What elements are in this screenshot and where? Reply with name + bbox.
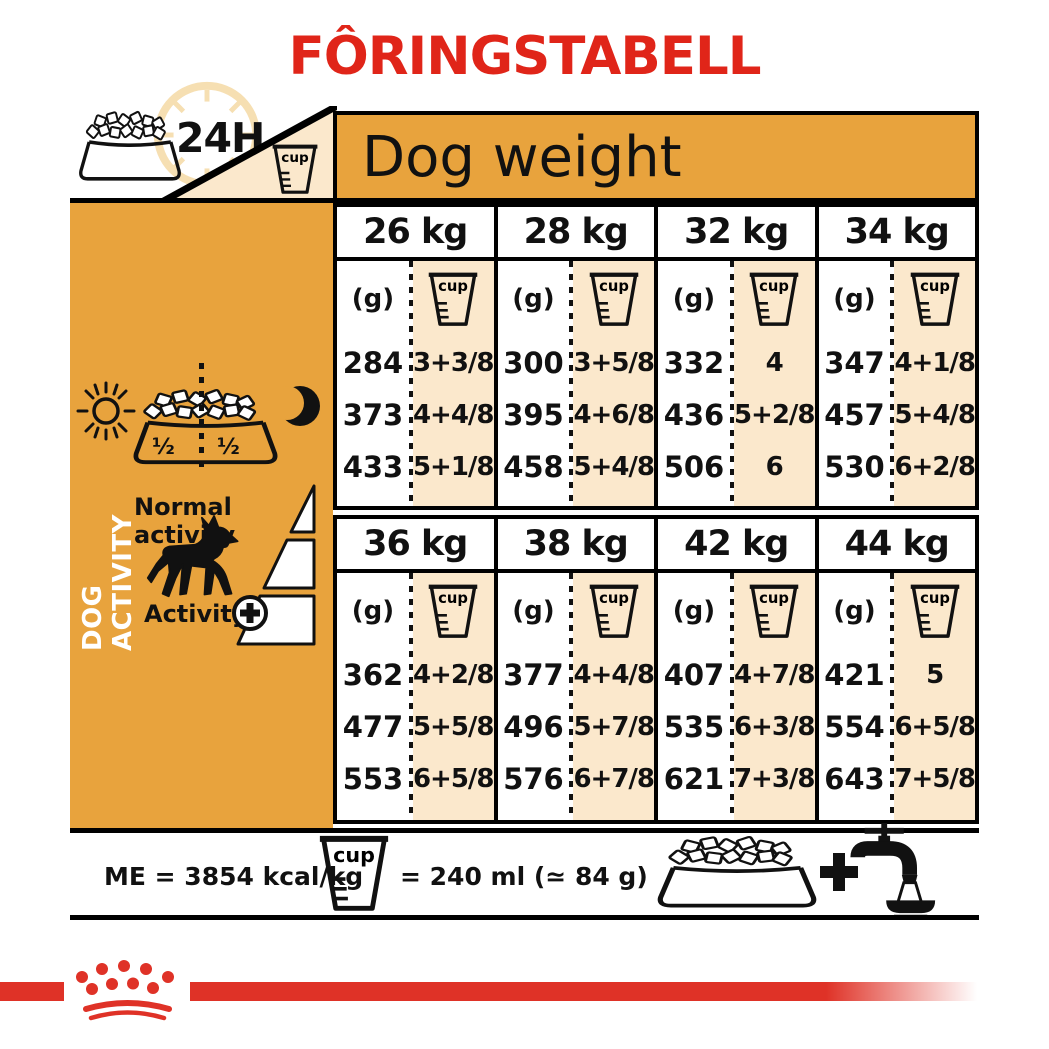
half-portion-right: ½ xyxy=(217,435,240,460)
svg-text:cup: cup xyxy=(599,590,629,607)
feeding-table-upper: 26 kg(g)284373433cup3+3/84+4/85+1/828 kg… xyxy=(333,203,979,510)
cup-icon: cup xyxy=(316,834,392,912)
cup-subheader: cup xyxy=(748,261,800,337)
grams-value: 458 xyxy=(503,441,564,493)
grams-value: 395 xyxy=(503,389,564,441)
weight-header: 28 kg xyxy=(498,207,655,261)
cups-value: 6+3/8 xyxy=(734,701,815,753)
grams-value: 457 xyxy=(824,389,885,441)
cup-icon: cup xyxy=(427,582,479,640)
cups-value: 3+5/8 xyxy=(573,337,654,389)
cups-value: 7+3/8 xyxy=(734,753,815,805)
cups-value: 5 xyxy=(926,649,943,701)
weight-body: (g)284373433cup3+3/84+4/85+1/8 xyxy=(337,261,494,506)
dog-weight-header: Dog weight xyxy=(333,111,979,203)
grams-subcolumn: (g)421554643 xyxy=(819,573,891,820)
cup-subheader: cup xyxy=(427,573,479,649)
cups-value: 4+4/8 xyxy=(413,389,494,441)
cups-value: 6+7/8 xyxy=(573,753,654,805)
cup-icon: cup xyxy=(748,582,800,640)
cup-icon: cup xyxy=(588,582,640,640)
weight-column: 36 kg(g)362477553cup4+2/85+5/86+5/8 xyxy=(337,519,498,820)
grams-unit: (g) xyxy=(512,261,554,337)
grams-value: 553 xyxy=(343,753,404,805)
weight-header: 36 kg xyxy=(337,519,494,573)
grams-value: 530 xyxy=(824,441,885,493)
weight-column: 38 kg(g)377496576cup4+4/85+7/86+7/8 xyxy=(498,519,659,820)
cup-icon: cup xyxy=(588,270,640,328)
grams-value: 477 xyxy=(343,701,404,753)
brand-stripe-left xyxy=(0,982,64,1001)
feeding-table-lower: 36 kg(g)362477553cup4+2/85+5/86+5/838 kg… xyxy=(333,515,979,824)
royal-canin-crown-logo xyxy=(70,958,185,1024)
cups-value: 5+2/8 xyxy=(734,389,815,441)
dog-activity-sidebar: ½ ½ DOG ACTIVITY Normal activity Activit… xyxy=(70,203,333,828)
cups-subcolumn: cup56+5/87+5/8 xyxy=(894,573,975,820)
divider-line xyxy=(70,828,979,833)
cup-subheader: cup xyxy=(588,573,640,649)
weight-header: 42 kg xyxy=(658,519,815,573)
grams-subcolumn: (g)332436506 xyxy=(658,261,730,506)
cup-subheader: cup xyxy=(909,573,961,649)
weight-column: 34 kg(g)347457530cup4+1/85+4/86+2/8 xyxy=(819,207,976,506)
cups-value: 7+5/8 xyxy=(894,753,975,805)
cups-subcolumn: cup4+4/85+7/86+7/8 xyxy=(573,573,654,820)
cups-value: 6+2/8 xyxy=(894,441,975,493)
cups-value: 4+2/8 xyxy=(413,649,494,701)
weight-column: 26 kg(g)284373433cup3+3/84+4/85+1/8 xyxy=(337,207,498,506)
cups-value: 6+5/8 xyxy=(413,753,494,805)
cup-equivalence-label: = 240 ml (≃ 84 g) xyxy=(400,862,648,891)
divider-line xyxy=(70,915,979,920)
cups-value: 4 xyxy=(766,337,783,389)
svg-text:cup: cup xyxy=(920,278,950,295)
grams-value: 421 xyxy=(824,649,885,701)
grams-value: 373 xyxy=(343,389,404,441)
brand-stripe-right xyxy=(190,982,985,1001)
cup-icon: cup xyxy=(427,270,479,328)
weight-header: 26 kg xyxy=(337,207,494,261)
weight-header: 44 kg xyxy=(819,519,976,573)
cups-value: 4+1/8 xyxy=(894,337,975,389)
grams-value: 377 xyxy=(503,649,564,701)
grams-unit: (g) xyxy=(833,261,875,337)
grams-value: 300 xyxy=(503,337,564,389)
cup-subheader: cup xyxy=(588,261,640,337)
grams-value: 576 xyxy=(503,753,564,805)
cups-value: 4+6/8 xyxy=(573,389,654,441)
cups-subcolumn: cup3+5/84+6/85+4/8 xyxy=(573,261,654,506)
half-portion-left: ½ xyxy=(152,435,175,460)
cups-subcolumn: cup4+1/85+4/86+2/8 xyxy=(894,261,975,506)
plus-circle-icon xyxy=(230,593,270,633)
weight-column: 44 kg(g)421554643cup56+5/87+5/8 xyxy=(819,519,976,820)
cups-value: 4+7/8 xyxy=(734,649,815,701)
svg-text:cup: cup xyxy=(438,590,468,607)
grams-unit: (g) xyxy=(352,261,394,337)
grams-value: 506 xyxy=(664,441,725,493)
svg-text:cup: cup xyxy=(759,590,789,607)
sun-icon xyxy=(76,381,136,441)
cups-value: 5+7/8 xyxy=(573,701,654,753)
cup-icon: cup xyxy=(909,582,961,640)
grams-value: 347 xyxy=(824,337,885,389)
cup-icon: cup xyxy=(271,142,319,196)
feeding-table-page: FÔRINGSTABELL 24H cup Dog weight xyxy=(0,0,1049,1049)
cups-value: 5+4/8 xyxy=(573,441,654,493)
weight-body: (g)407535621cup4+7/86+3/87+3/8 xyxy=(658,573,815,820)
grams-subcolumn: (g)377496576 xyxy=(498,573,570,820)
grams-value: 554 xyxy=(824,701,885,753)
cup-icon: cup xyxy=(748,270,800,328)
grams-value: 621 xyxy=(664,753,725,805)
cups-value: 5+4/8 xyxy=(894,389,975,441)
grams-unit: (g) xyxy=(673,573,715,649)
cups-value: 6+5/8 xyxy=(894,701,975,753)
weight-body: (g)421554643cup56+5/87+5/8 xyxy=(819,573,976,820)
cup-icon: cup xyxy=(909,270,961,328)
cup-subheader: cup xyxy=(748,573,800,649)
bowl-split-dotted-line xyxy=(199,363,204,469)
grams-subcolumn: (g)407535621 xyxy=(658,573,730,820)
weight-body: (g)362477553cup4+2/85+5/86+5/8 xyxy=(337,573,494,820)
cup-subheader: cup xyxy=(427,261,479,337)
weight-column: 32 kg(g)332436506cup45+2/86 xyxy=(658,207,819,506)
dog-silhouette-icon xyxy=(146,511,242,603)
cups-subcolumn: cup4+2/85+5/86+5/8 xyxy=(413,573,494,820)
cups-value: 5+5/8 xyxy=(413,701,494,753)
cup-subheader: cup xyxy=(909,261,961,337)
grams-value: 436 xyxy=(664,389,725,441)
food-bowl-icon xyxy=(656,835,818,913)
cups-subcolumn: cup4+7/86+3/87+3/8 xyxy=(734,573,815,820)
weight-body: (g)377496576cup4+4/85+7/86+7/8 xyxy=(498,573,655,820)
grams-value: 433 xyxy=(343,441,404,493)
grams-unit: (g) xyxy=(833,573,875,649)
svg-text:cup: cup xyxy=(333,843,375,867)
grams-value: 362 xyxy=(343,649,404,701)
grams-value: 535 xyxy=(664,701,725,753)
dog-activity-label: DOG ACTIVITY xyxy=(78,475,138,651)
weight-header: 38 kg xyxy=(498,519,655,573)
grams-value: 496 xyxy=(503,701,564,753)
svg-text:cup: cup xyxy=(599,278,629,295)
cups-value: 5+1/8 xyxy=(413,441,494,493)
grams-value: 643 xyxy=(824,753,885,805)
weight-column: 42 kg(g)407535621cup4+7/86+3/87+3/8 xyxy=(658,519,819,820)
cups-subcolumn: cup45+2/86 xyxy=(734,261,815,506)
svg-text:cup: cup xyxy=(759,278,789,295)
cups-value: 4+4/8 xyxy=(573,649,654,701)
grams-value: 332 xyxy=(664,337,725,389)
grams-unit: (g) xyxy=(512,573,554,649)
grams-subcolumn: (g)300395458 xyxy=(498,261,570,506)
weight-column: 28 kg(g)300395458cup3+5/84+6/85+4/8 xyxy=(498,207,659,506)
weight-header: 34 kg xyxy=(819,207,976,261)
cups-subcolumn: cup3+3/84+4/85+1/8 xyxy=(413,261,494,506)
svg-text:cup: cup xyxy=(438,278,468,295)
grams-subcolumn: (g)347457530 xyxy=(819,261,891,506)
weight-body: (g)300395458cup3+5/84+6/85+4/8 xyxy=(498,261,655,506)
svg-text:cup: cup xyxy=(281,150,309,166)
water-tap-icon xyxy=(850,822,938,916)
grams-unit: (g) xyxy=(352,573,394,649)
grams-unit: (g) xyxy=(673,261,715,337)
grams-subcolumn: (g)284373433 xyxy=(337,261,409,506)
svg-text:cup: cup xyxy=(920,590,950,607)
weight-header: 32 kg xyxy=(658,207,815,261)
grams-value: 284 xyxy=(343,337,404,389)
weight-body: (g)347457530cup4+1/85+4/86+2/8 xyxy=(819,261,976,506)
cups-value: 3+3/8 xyxy=(413,337,494,389)
grams-value: 407 xyxy=(664,649,725,701)
moon-icon xyxy=(278,383,320,429)
grams-subcolumn: (g)362477553 xyxy=(337,573,409,820)
cups-value: 6 xyxy=(766,441,783,493)
weight-body: (g)332436506cup45+2/86 xyxy=(658,261,815,506)
